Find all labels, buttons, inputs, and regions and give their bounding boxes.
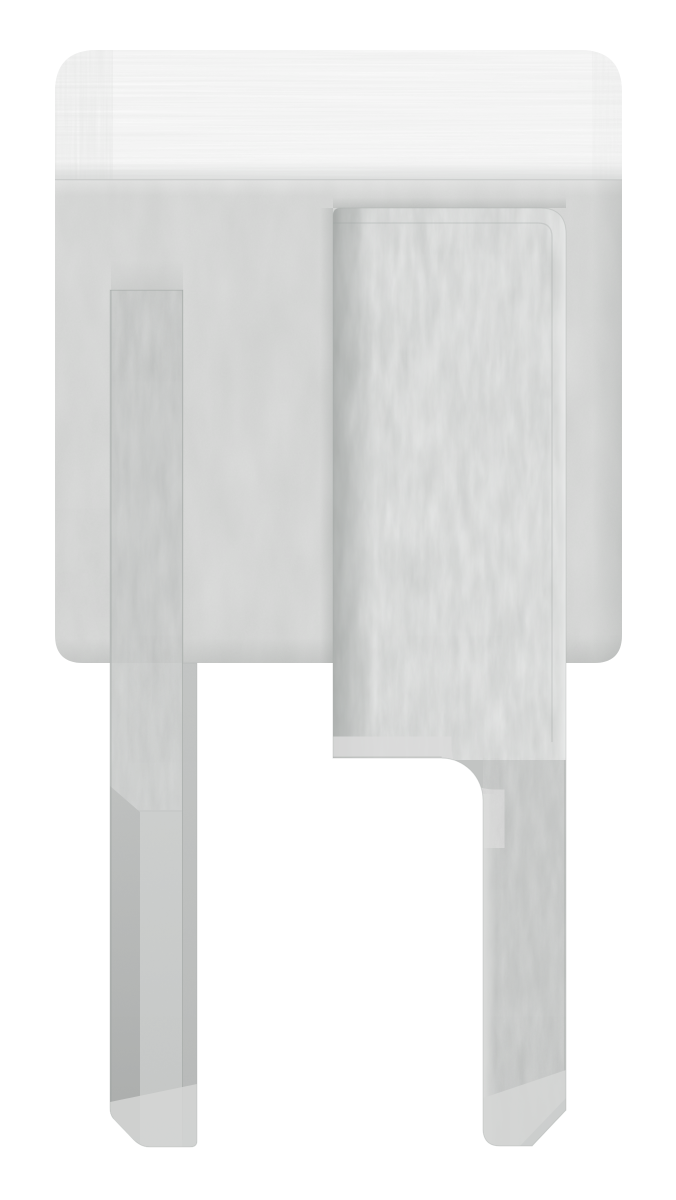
band-right-corner-ridges xyxy=(592,50,622,180)
band-left-corner-ridges xyxy=(55,50,113,180)
shadow-above-left-tab xyxy=(111,260,183,290)
cap-face-right-shade xyxy=(592,180,622,663)
shadow-above-right-tab xyxy=(333,197,566,208)
cap-face-top-sheen xyxy=(55,180,622,196)
right-panel-right-bevel xyxy=(546,208,566,760)
product-photo xyxy=(0,0,676,1200)
product-photo-stage xyxy=(0,0,676,1200)
band-bottom-shade xyxy=(55,162,622,180)
brushed-band-dark-streaks xyxy=(55,50,622,180)
right-panel-left-shade xyxy=(333,208,375,760)
shadow-left-of-right-tab xyxy=(320,208,333,663)
